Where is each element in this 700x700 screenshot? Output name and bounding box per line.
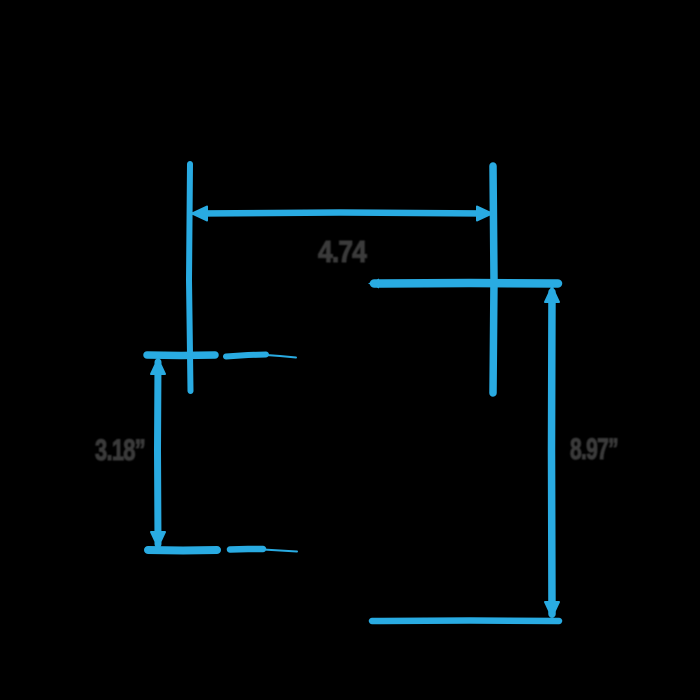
svg-text:3.18”: 3.18” [95, 434, 145, 467]
svg-text:4.74: 4.74 [318, 234, 367, 269]
svg-text:8.97”: 8.97” [570, 433, 618, 466]
